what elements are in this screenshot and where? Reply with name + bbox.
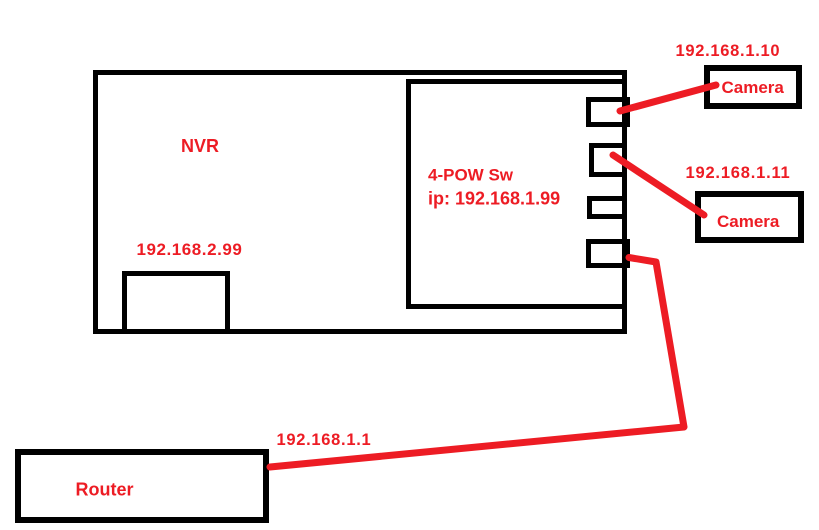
svg-text:192.168.1.11: 192.168.1.11	[686, 164, 791, 182]
svg-text:Camera: Camera	[722, 78, 785, 97]
svg-text:192.168.1.1: 192.168.1.1	[277, 431, 372, 449]
svg-text:192.168.1.10: 192.168.1.10	[676, 42, 781, 60]
svg-text:Router: Router	[76, 480, 134, 500]
svg-text:4-POW Sw: 4-POW Sw	[428, 166, 514, 185]
svg-text:NVR: NVR	[181, 136, 219, 156]
svg-text:Camera: Camera	[717, 212, 780, 231]
svg-text:192.168.2.99: 192.168.2.99	[137, 240, 243, 259]
svg-text:ip: 192.168.1.99: ip: 192.168.1.99	[428, 189, 560, 209]
